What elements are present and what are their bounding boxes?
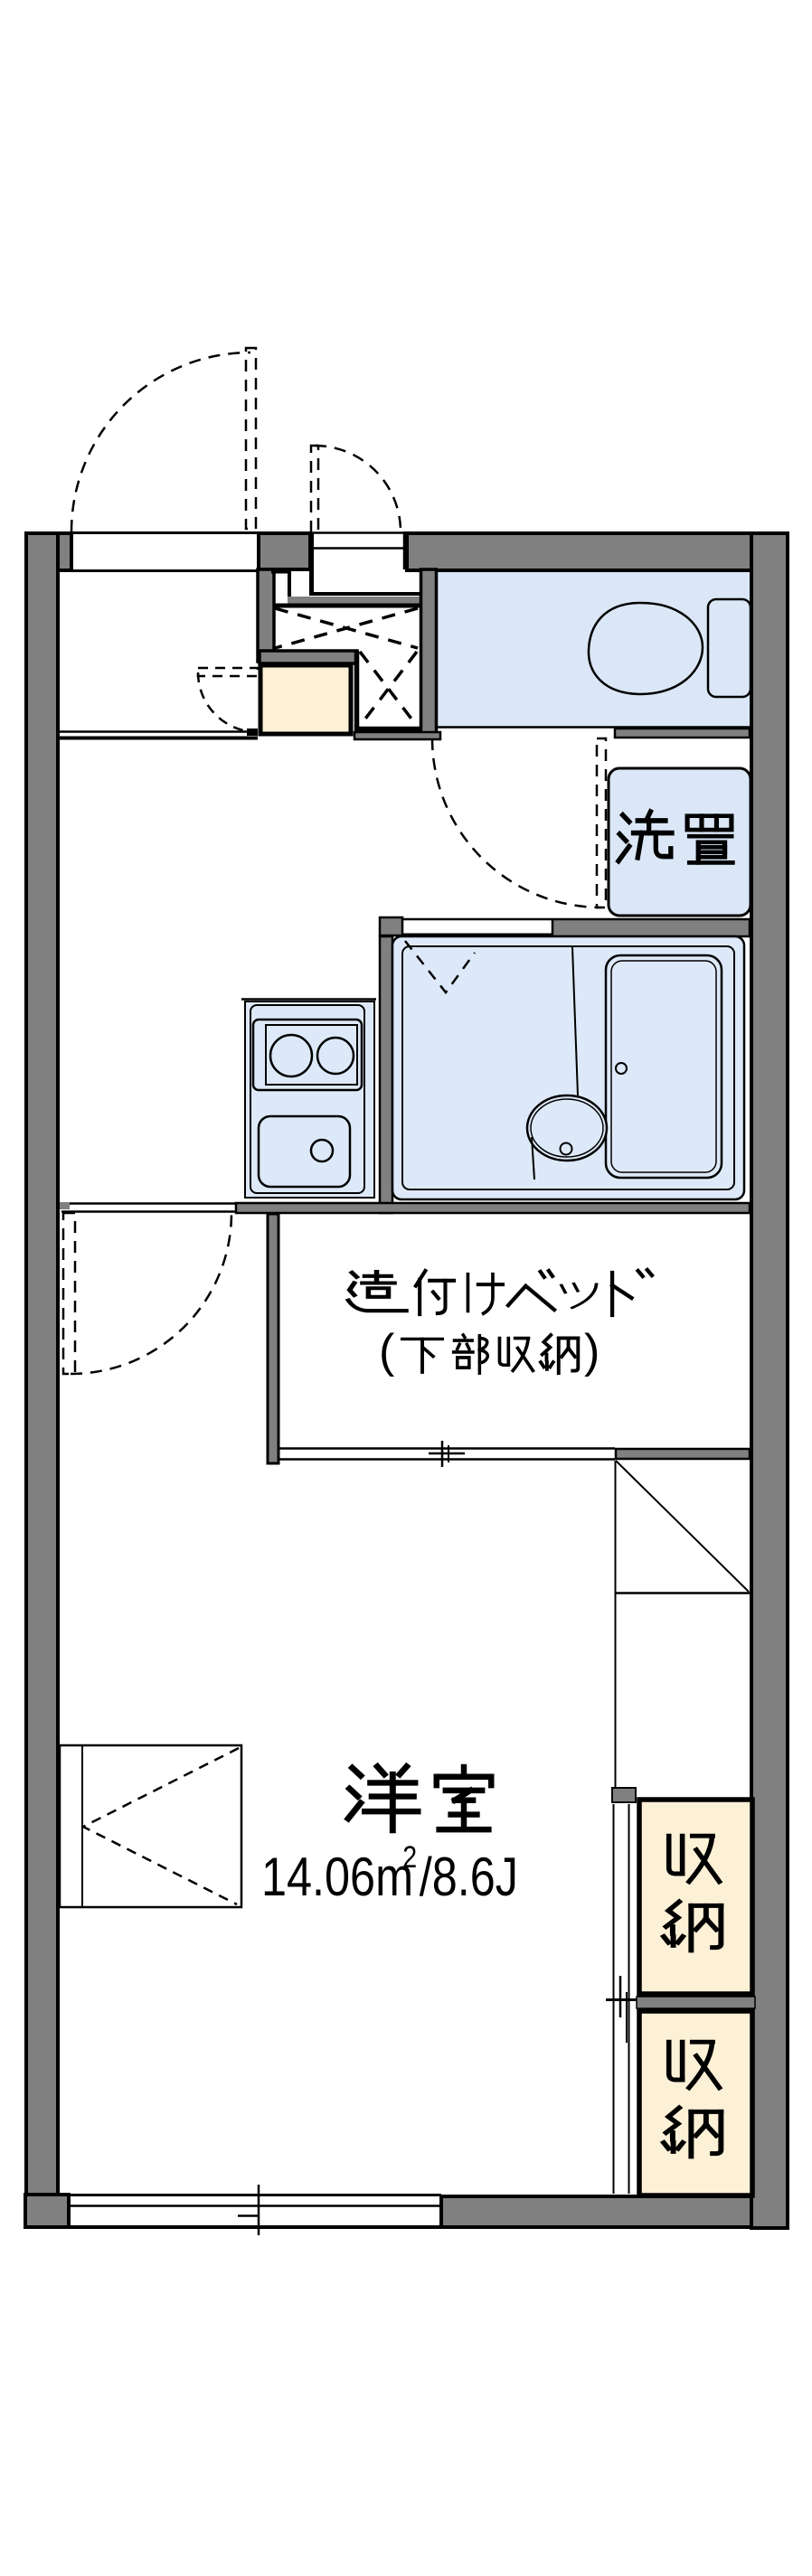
- svg-text:(: (: [379, 1325, 395, 1377]
- svg-text:): ): [584, 1325, 600, 1377]
- svg-text:2: 2: [402, 1840, 417, 1875]
- svg-text:14.06m: 14.06m: [261, 1847, 413, 1907]
- svg-text:/8.6J: /8.6J: [420, 1847, 518, 1907]
